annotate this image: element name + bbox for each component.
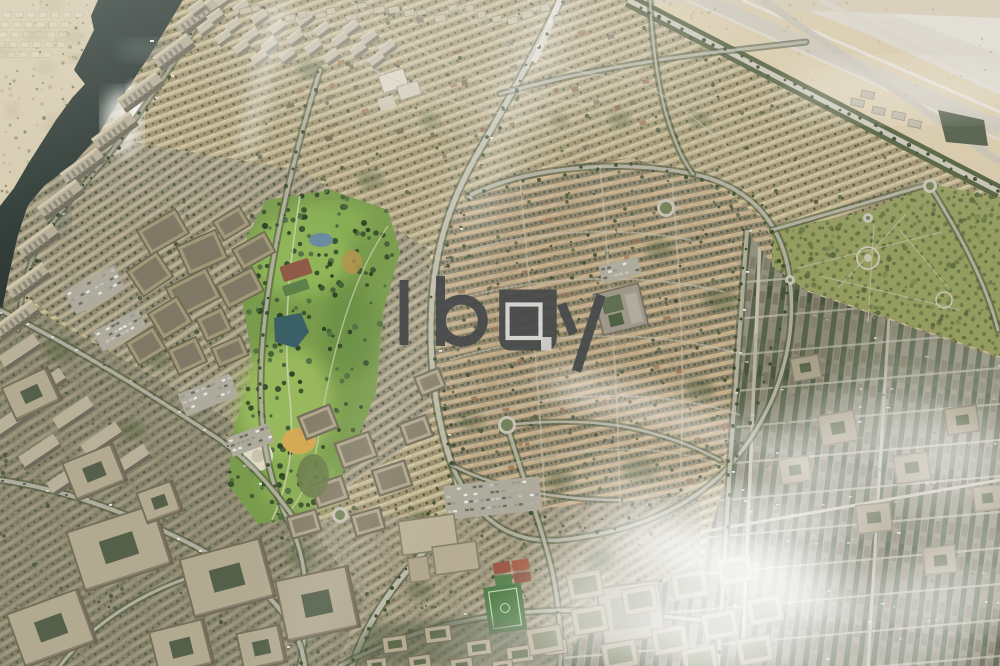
svg-text:REAL ESTATE: REAL ESTATE xyxy=(445,377,564,391)
